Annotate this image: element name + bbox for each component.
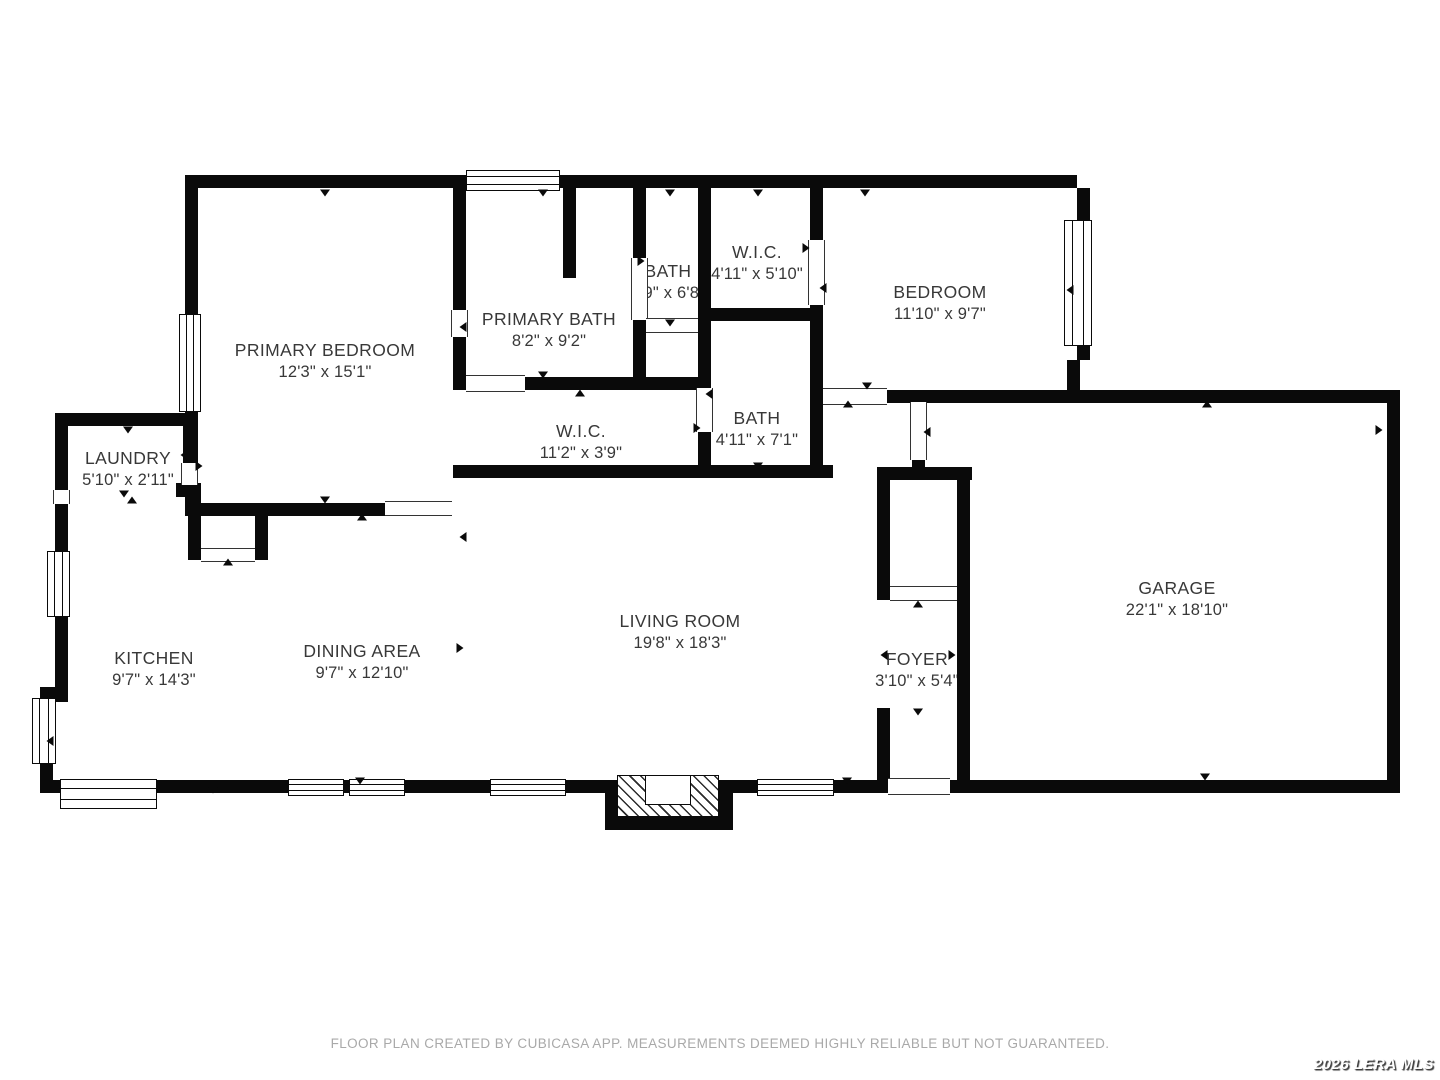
door-swing-arrow (127, 497, 137, 504)
room-label-primary-bath: PRIMARY BATH8'2" x 9'2" (482, 308, 616, 352)
door-swing-arrow (208, 787, 218, 794)
room-name: FOYER (875, 648, 959, 670)
watermark-mls: 2026 LERA MLS (1314, 1056, 1434, 1073)
door-swing-arrow (1200, 774, 1210, 781)
room-label-kitchen: KITCHEN9'7" x 14'3" (112, 647, 196, 691)
window (179, 314, 201, 412)
room-dimensions: 9'7" x 12'10" (303, 662, 420, 684)
door-swing-arrow (181, 450, 188, 460)
wall (563, 188, 576, 278)
wall (185, 175, 1077, 188)
wall (810, 188, 823, 478)
wall (950, 780, 1400, 793)
window-glass (289, 784, 343, 791)
room-label-wic-2: W.I.C.11'2" x 3'9" (540, 420, 623, 464)
door-swing-arrow (457, 643, 464, 653)
door-opening (385, 501, 452, 516)
floor-plan-canvas: FLOOR PLAN CREATED BY CUBICASA APP. MEAS… (0, 0, 1440, 1080)
room-name: BATH (716, 407, 799, 429)
door-swing-arrow (913, 709, 923, 716)
wall (1067, 360, 1080, 390)
room-dimensions: 12'3" x 15'1" (235, 361, 415, 383)
door-swing-arrow (320, 190, 330, 197)
door-swing-arrow (860, 190, 870, 197)
door-swing-arrow (460, 322, 467, 332)
wall (877, 467, 890, 600)
room-name: BEDROOM (893, 281, 986, 303)
door-swing-arrow (665, 320, 675, 327)
door-swing-arrow (320, 497, 330, 504)
window (1064, 220, 1092, 346)
wall (698, 308, 822, 321)
room-dimensions: 4'11" x 7'1" (716, 429, 799, 451)
door-swing-arrow (1067, 285, 1074, 295)
door-swing-arrow (843, 401, 853, 408)
room-dimensions: 11'10" x 9'7" (893, 303, 986, 325)
room-dimensions: 22'1" x 18'10" (1126, 599, 1228, 621)
door-swing-arrow (924, 427, 931, 437)
door-swing-arrow (1376, 425, 1383, 435)
window-glass (54, 552, 63, 616)
wall (453, 188, 466, 390)
door-swing-arrow (706, 389, 713, 399)
room-dimensions: 3'10" x 5'4" (875, 670, 959, 692)
room-dimensions: 5'10" x 2'11" (82, 469, 174, 491)
door-opening (808, 240, 825, 305)
door-swing-arrow (638, 256, 645, 266)
door-swing-arrow (357, 514, 367, 521)
door-swing-arrow (355, 778, 365, 785)
room-label-bath-2: BATH4'11" x 7'1" (716, 407, 799, 451)
window (47, 551, 70, 617)
door-swing-arrow (913, 601, 923, 608)
room-name: LIVING ROOM (619, 610, 740, 632)
door-swing-arrow (842, 778, 852, 785)
window-glass (39, 699, 49, 763)
window-glass (467, 176, 559, 184)
room-label-wic-1: W.I.C.4'11" x 5'10" (711, 241, 803, 285)
door-swing-arrow (123, 427, 133, 434)
room-name: PRIMARY BEDROOM (235, 339, 415, 361)
door-swing-arrow (881, 650, 888, 660)
door-swing-arrow (820, 283, 827, 293)
room-dimensions: 19'8" x 18'3" (619, 632, 740, 654)
room-name: W.I.C. (711, 241, 803, 263)
door-opening (890, 586, 957, 601)
door-swing-arrow (949, 650, 956, 660)
window (757, 779, 834, 796)
room-name: W.I.C. (540, 420, 623, 442)
window-glass (186, 315, 195, 411)
window-glass (491, 784, 565, 791)
window-glass (350, 784, 404, 791)
door-swing-arrow (47, 736, 54, 746)
room-label-primary-bedroom: PRIMARY BEDROOM12'3" x 15'1" (235, 339, 415, 383)
window (288, 779, 344, 796)
room-name: LAUNDRY (82, 447, 174, 469)
room-name: PRIMARY BATH (482, 308, 616, 330)
window (60, 779, 157, 809)
room-dimensions: 9'7" x 14'3" (112, 669, 196, 691)
room-label-dining-area: DINING AREA9'7" x 12'10" (303, 640, 420, 684)
wall (55, 413, 195, 426)
door-opening (631, 258, 648, 320)
door-swing-arrow (862, 383, 872, 390)
wall (255, 503, 268, 560)
room-label-living-room: LIVING ROOM19'8" x 18'3" (619, 610, 740, 654)
wall (1387, 390, 1400, 793)
door-opening (53, 490, 70, 504)
wall (698, 188, 711, 478)
window-glass (758, 784, 833, 791)
room-label-laundry: LAUNDRY5'10" x 2'11" (82, 447, 174, 491)
footer-disclaimer: FLOOR PLAN CREATED BY CUBICASA APP. MEAS… (331, 1036, 1110, 1051)
door-swing-arrow (665, 190, 675, 197)
room-label-foyer: FOYER3'10" x 5'4" (875, 648, 959, 692)
window-glass (1072, 221, 1083, 345)
room-label-garage: GARAGE22'1" x 18'10" (1126, 577, 1228, 621)
door-swing-arrow (753, 190, 763, 197)
door-swing-arrow (803, 243, 810, 253)
door-swing-arrow (1202, 401, 1212, 408)
fireplace-insert (645, 775, 691, 805)
door-swing-arrow (460, 532, 467, 542)
room-name: GARAGE (1126, 577, 1228, 599)
wall (453, 465, 833, 478)
room-label-bedroom: BEDROOM11'10" x 9'7" (893, 281, 986, 325)
window (466, 170, 560, 191)
window (490, 779, 566, 796)
door-swing-arrow (575, 390, 585, 397)
door-opening (823, 388, 887, 405)
room-dimensions: 11'2" x 3'9" (540, 442, 623, 464)
room-name: DINING AREA (303, 640, 420, 662)
door-swing-arrow (196, 461, 203, 471)
door-swing-arrow (753, 463, 763, 470)
door-swing-arrow (694, 423, 701, 433)
door-swing-arrow (538, 190, 548, 197)
door-swing-arrow (223, 559, 233, 566)
window (32, 698, 56, 764)
door-swing-arrow (538, 372, 548, 379)
wall (957, 467, 970, 793)
wall (188, 483, 201, 560)
window-glass (61, 788, 156, 800)
door-opening (466, 375, 525, 392)
room-dimensions: 8'2" x 9'2" (482, 330, 616, 352)
room-dimensions: 4'11" x 5'10" (711, 263, 803, 285)
door-opening (888, 778, 950, 795)
room-name: KITCHEN (112, 647, 196, 669)
